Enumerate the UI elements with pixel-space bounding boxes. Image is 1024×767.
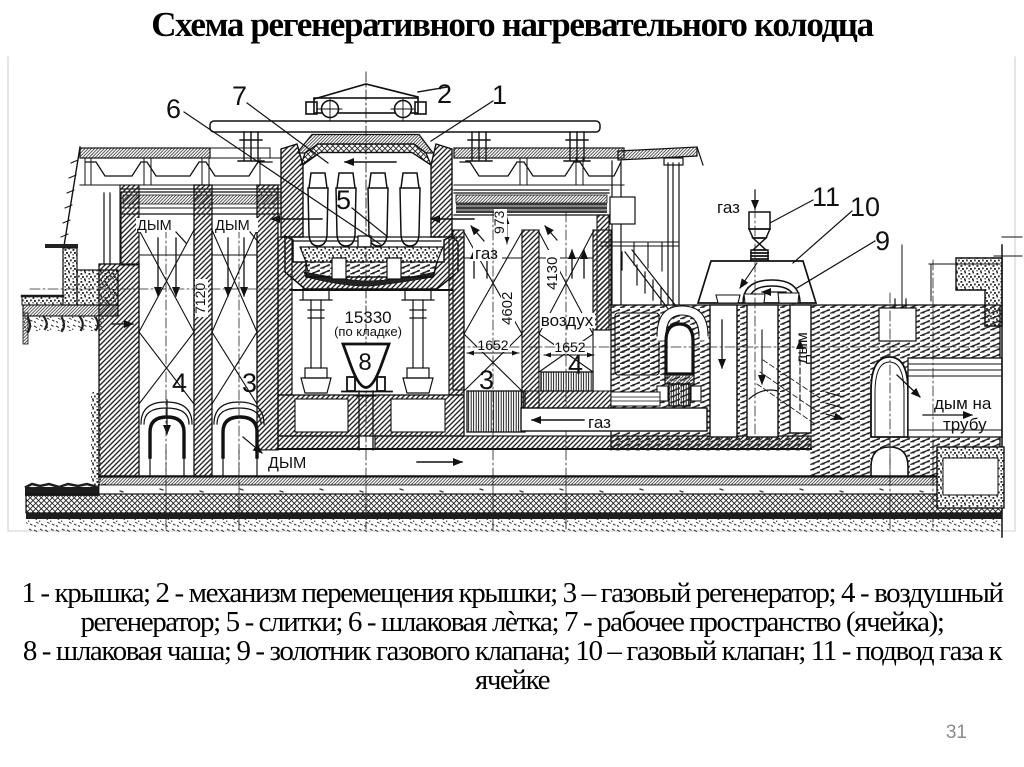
svg-text:3: 3 [242, 368, 257, 398]
svg-text:воздух: воздух [541, 311, 594, 330]
svg-text:ДЫМ: ДЫМ [268, 455, 306, 472]
svg-text:4602: 4602 [499, 292, 516, 325]
svg-text:5: 5 [336, 185, 351, 215]
svg-text:7: 7 [232, 81, 247, 111]
svg-text:газ: газ [588, 413, 611, 432]
svg-text:11: 11 [812, 182, 840, 212]
svg-text:9: 9 [875, 226, 890, 256]
svg-text:8: 8 [358, 349, 371, 376]
svg-text:4130: 4130 [544, 257, 561, 290]
svg-text:4: 4 [172, 368, 187, 398]
svg-text:газ: газ [717, 198, 740, 217]
svg-text:10: 10 [850, 192, 880, 222]
svg-text:(по кладке): (по кладке) [334, 324, 402, 339]
svg-text:газ: газ [475, 244, 498, 263]
svg-text:7120: 7120 [192, 283, 208, 314]
svg-text:2: 2 [437, 79, 452, 109]
svg-text:6: 6 [166, 94, 181, 124]
svg-text:дым на: дым на [934, 394, 992, 413]
svg-text:трубу: трубу [943, 415, 987, 434]
svg-text:ДЫМ: ДЫМ [137, 218, 172, 234]
svg-text:дым: дым [794, 332, 811, 364]
svg-text:ДЫМ: ДЫМ [215, 218, 250, 234]
svg-text:1: 1 [492, 80, 507, 110]
